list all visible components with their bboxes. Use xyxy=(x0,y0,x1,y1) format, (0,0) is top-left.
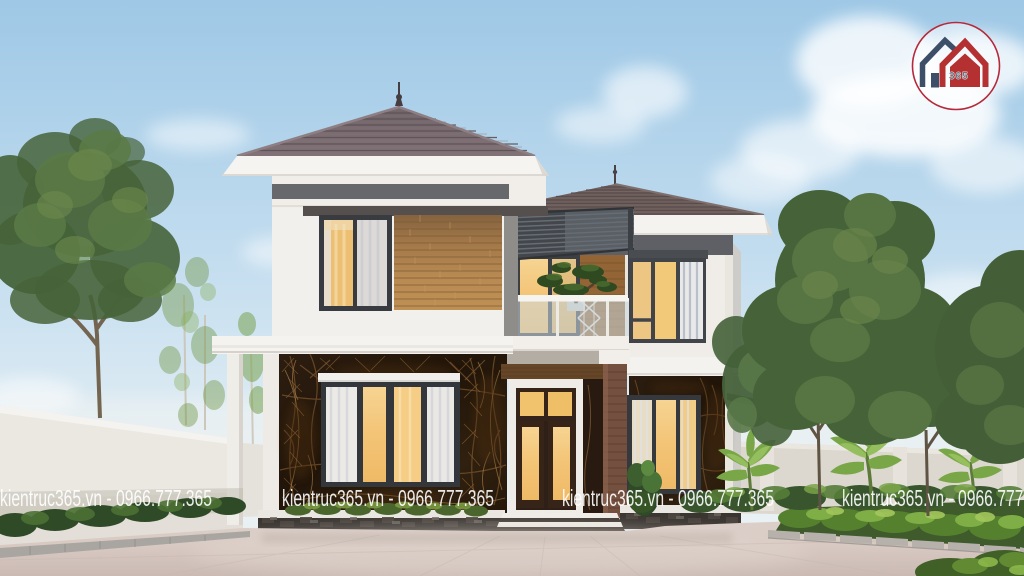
svg-text:kientruc365.vn - 0966.777.365: kientruc365.vn - 0966.777.365 xyxy=(282,485,494,511)
svg-text:365: 365 xyxy=(949,71,969,82)
svg-text:kientruc365.vn - 0966.777.365: kientruc365.vn - 0966.777.365 xyxy=(0,485,212,511)
svg-text:kientruc365.vn - 0966.777.365: kientruc365.vn - 0966.777.365 xyxy=(562,485,774,511)
svg-text:kientruc365.vn - 0966.777.365: kientruc365.vn - 0966.777.365 xyxy=(842,485,1024,511)
